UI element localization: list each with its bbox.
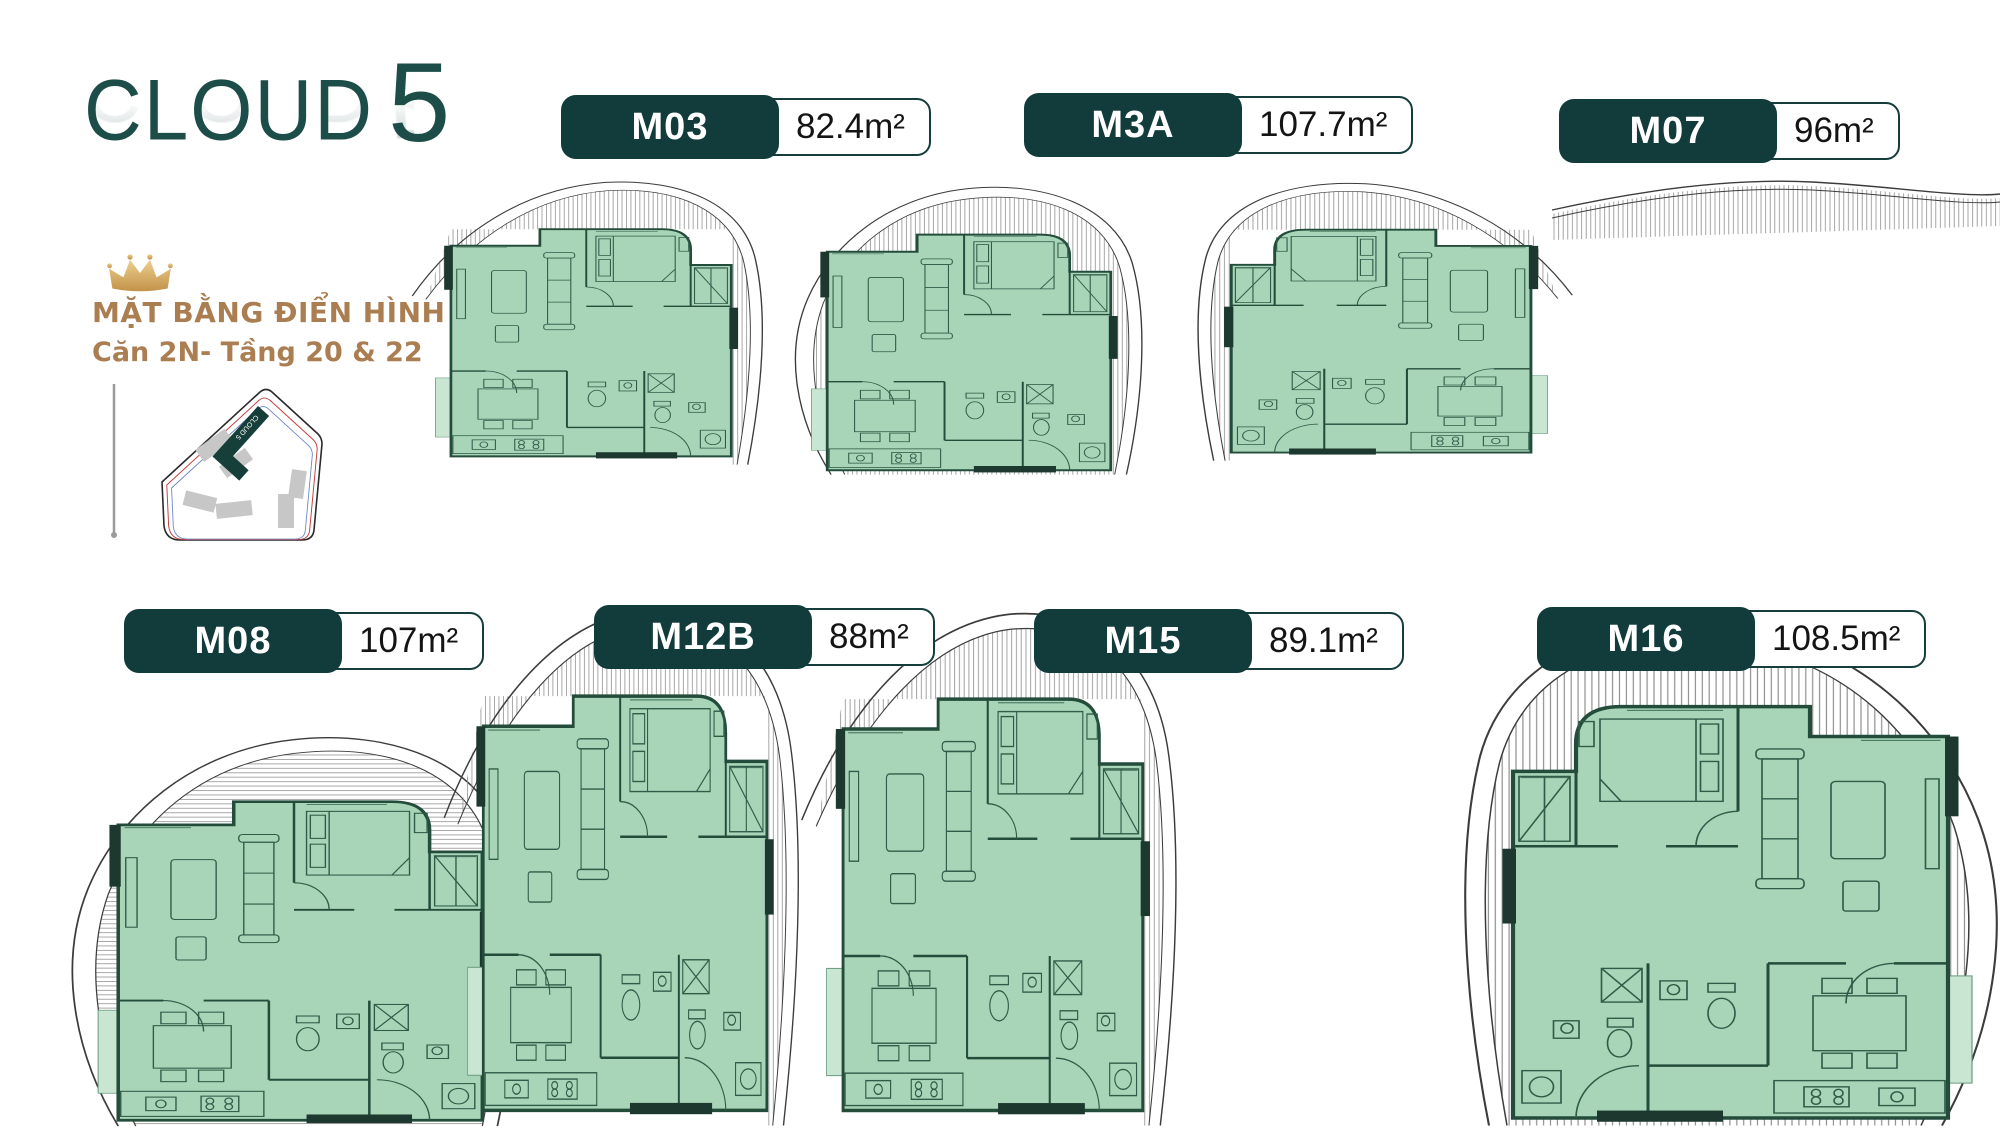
- floor-plan-m3a: [792, 146, 1144, 476]
- unit-badge-m03: M03 82.4m²: [562, 96, 931, 158]
- unit-code: M03: [562, 96, 778, 158]
- unit-badge-m08: M08 107m²: [125, 610, 484, 672]
- site-map: CLOUD 5: [100, 382, 340, 582]
- unit-badge-m12b: M12B 88m²: [595, 606, 935, 668]
- unit-badge-m16: M16 108.5m²: [1538, 608, 1926, 670]
- unit-badge-m3a: M3A 107.7m²: [1025, 94, 1413, 156]
- unit-area: 107.7m²: [1215, 96, 1413, 154]
- unit-code: M07: [1560, 100, 1776, 162]
- unit-code: M08: [125, 610, 341, 672]
- floor-plan-m07: [1192, 150, 1564, 462]
- unit-badge-m07: M07 96m²: [1560, 100, 1900, 162]
- unit-area: 89.1m²: [1225, 612, 1404, 670]
- unit-code: M3A: [1025, 94, 1241, 156]
- brochure-page: { "brand": { "name": "CLOUD", "number": …: [0, 0, 2000, 1125]
- unit-area: 108.5m²: [1728, 610, 1926, 668]
- page-title-line1: MẶT BẰNG ĐIỂN HÌNH: [92, 296, 445, 329]
- page-title-line2: Căn 2N- Tầng 20 & 22: [92, 337, 445, 368]
- floor-plan-m03: [420, 148, 768, 466]
- page-title: MẶT BẰNG ĐIỂN HÌNH Căn 2N- Tầng 20 & 22: [92, 296, 445, 368]
- brand-logo: CLOUD 5 CLOUD 5: [84, 58, 414, 246]
- brand-logo-reflection: CLOUD 5: [84, 42, 414, 144]
- unit-badge-m15: M15 89.1m²: [1035, 610, 1404, 672]
- crown-icon: [106, 252, 174, 294]
- unit-code: M12B: [595, 606, 811, 668]
- floor-plan-m07-roof-strip: [1552, 168, 2000, 240]
- unit-code: M15: [1035, 610, 1251, 672]
- unit-code: M16: [1538, 608, 1754, 670]
- unit-area: 82.4m²: [752, 98, 931, 156]
